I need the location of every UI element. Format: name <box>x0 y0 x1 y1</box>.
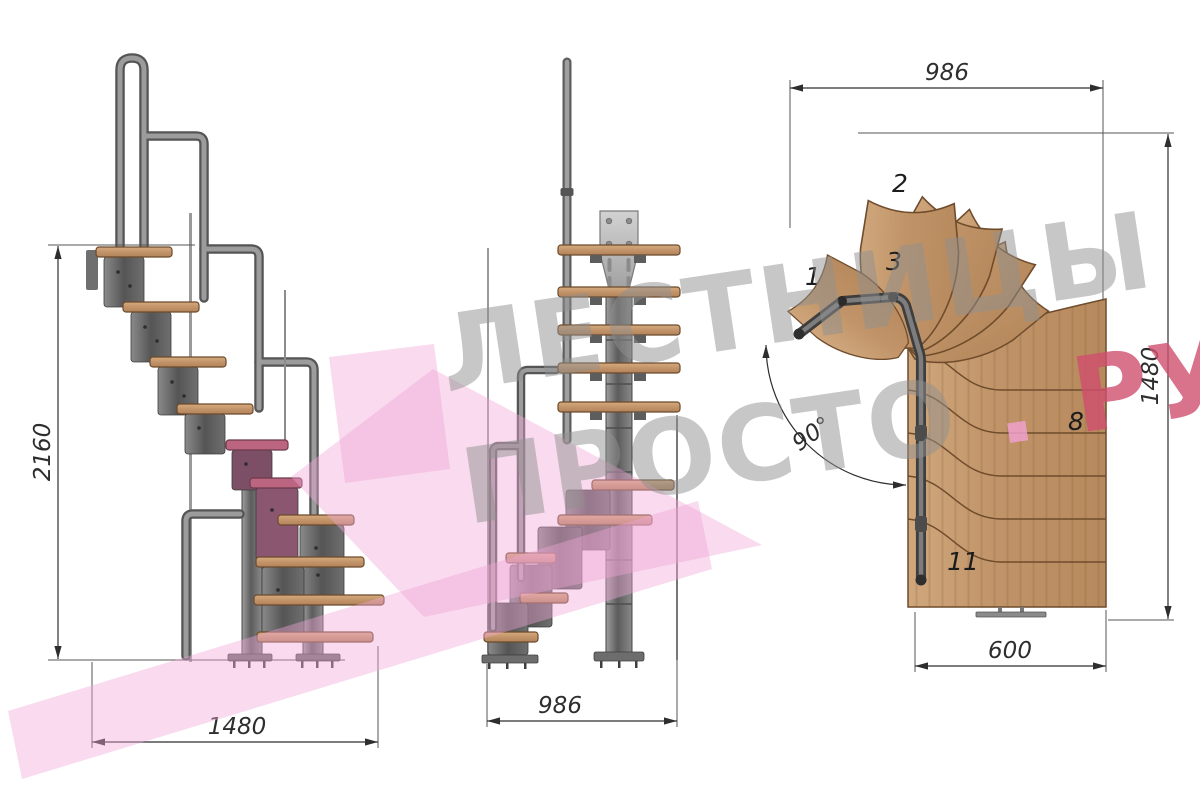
column-base-bolts <box>600 661 638 668</box>
front-base-bolts <box>488 663 527 669</box>
drawing-canvas: 2160 1480 <box>0 0 1200 790</box>
staircase-technical-drawing: 2160 1480 <box>0 0 1200 790</box>
dim-plan-bottom: 600 <box>988 638 1032 664</box>
step-label-11: 11 <box>947 547 979 576</box>
dim-front-width: 986 <box>538 693 582 719</box>
highlighted-tread <box>226 440 288 450</box>
dim-side-height: 2160 <box>30 423 56 482</box>
watermark-line2-suffix: РУ <box>1064 313 1200 457</box>
dimension-plan-bottom: 600 <box>915 610 1106 672</box>
watermark-line2-dot: . <box>985 342 1044 469</box>
front-base-flange <box>482 655 538 663</box>
step-label-2: 2 <box>892 169 908 198</box>
column-base-flange <box>594 652 644 661</box>
dim-plan-top: 986 <box>925 60 969 86</box>
step-modules <box>104 257 344 639</box>
plan-base-plate <box>976 607 1046 617</box>
